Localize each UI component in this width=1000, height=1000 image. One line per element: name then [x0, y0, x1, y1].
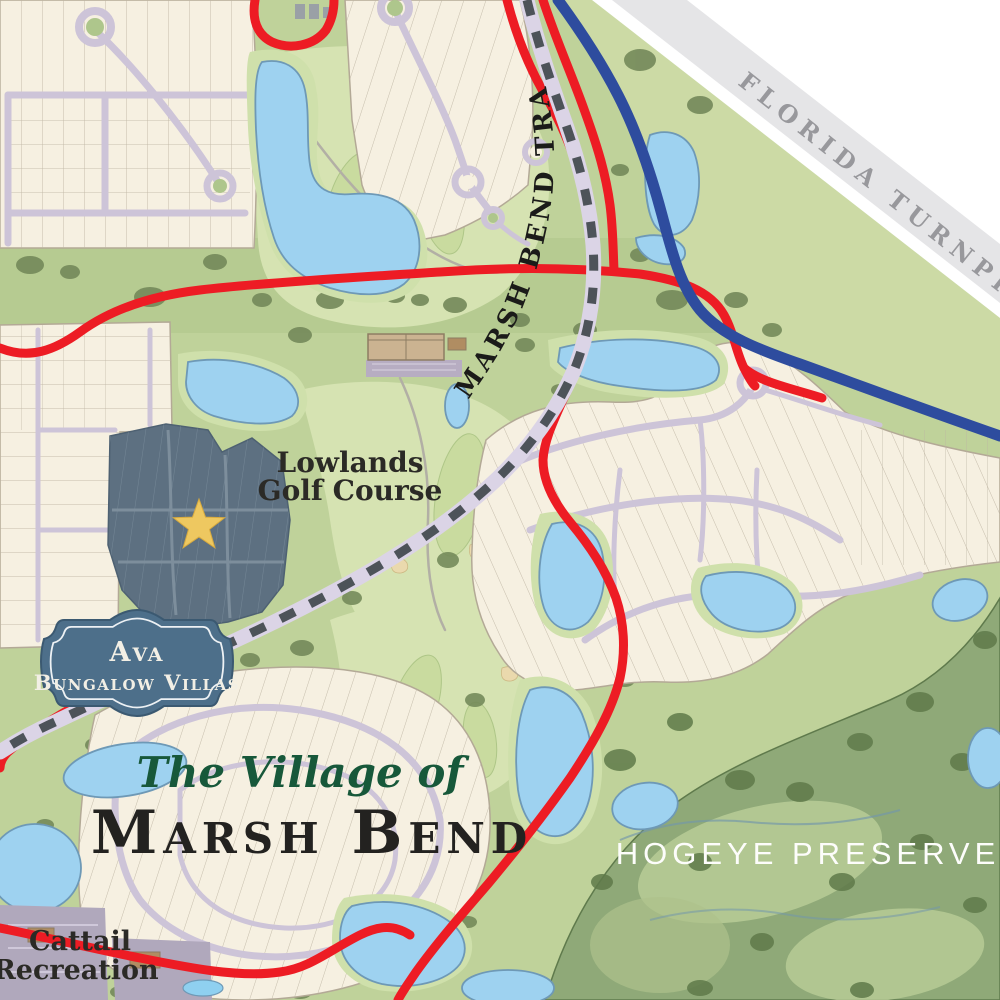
hogeye-preserve-label: HOGEYE PRESERVE — [616, 836, 1000, 871]
golf-label-line2: Golf Course — [258, 474, 443, 507]
ava-bungalow-villas-badge: Ava Bungalow Villas — [34, 610, 240, 716]
recreation-label-line2: Recreation — [0, 955, 159, 986]
ava-site-highlight — [108, 424, 290, 628]
badge-line2: Bungalow Villas — [34, 670, 240, 695]
recreation-label-line1: Cattail — [29, 926, 131, 957]
village-title-prefix: The Village of — [137, 748, 471, 797]
village-title: Marsh Bend — [91, 798, 533, 868]
badge-line1: Ava — [109, 637, 165, 668]
map-canvas: FLORIDA TURNPIKE MARSH BEND TRAIL Ava Bu… — [0, 0, 1000, 1000]
village-map: FLORIDA TURNPIKE MARSH BEND TRAIL Ava Bu… — [0, 0, 1000, 1000]
